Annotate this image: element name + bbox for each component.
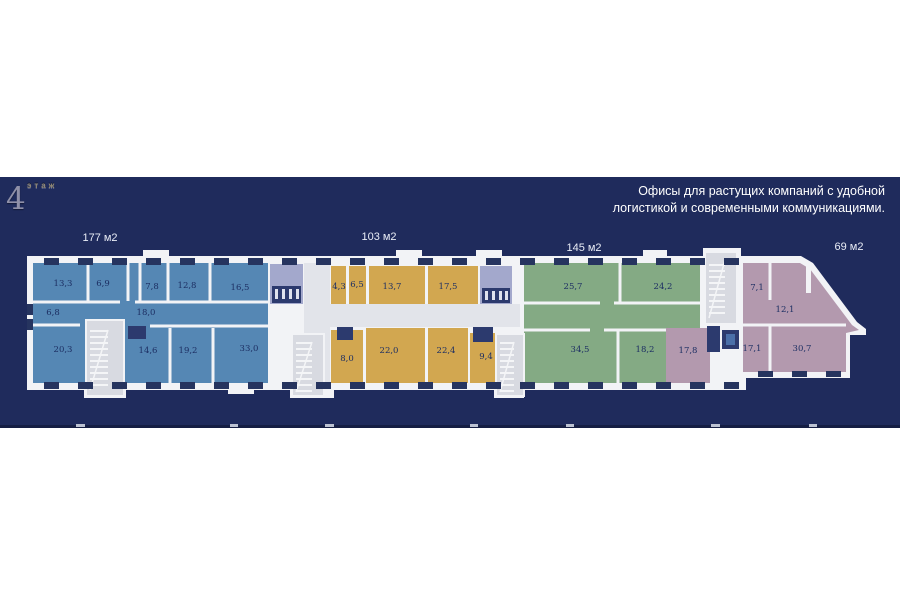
wc-block-left (270, 264, 303, 304)
room-area-label: 22,4 (437, 346, 456, 356)
room-area-label: 7,8 (145, 282, 159, 292)
floor-plan (0, 0, 900, 604)
reflection-speck (325, 424, 334, 427)
reflection-speck (711, 424, 720, 427)
room-area-label: 17,8 (679, 346, 698, 356)
room-area-label: 7,1 (750, 283, 764, 293)
room-area-label: 6,9 (96, 279, 110, 289)
room-area-label: 17,5 (439, 282, 458, 292)
room-area-label: 12,1 (776, 305, 795, 315)
room-area-label: 16,5 (231, 283, 250, 293)
room-area-label: 9,4 (479, 352, 493, 362)
room-area-label: 12,8 (178, 281, 197, 291)
reflection-speck (470, 424, 478, 427)
reflection-speck (230, 424, 238, 427)
room-area-label: 19,2 (179, 346, 198, 356)
room-area-label: 4,3 (332, 282, 346, 292)
reflection-speck (566, 424, 574, 427)
reflection-speck (809, 424, 817, 427)
reflection-speck (76, 424, 85, 427)
room-area-label: 13,3 (54, 279, 73, 289)
room-area-label: 6,8 (46, 308, 60, 318)
room-area-label: 14,6 (139, 346, 158, 356)
promo-slide: этаж 4 Офисы для растущих компаний с удо… (0, 0, 900, 604)
room-area-label: 18,2 (636, 345, 655, 355)
room-area-label: 20,3 (54, 345, 73, 355)
room-area-label: 17,1 (743, 344, 762, 354)
wc-block-right (480, 266, 512, 304)
room-area-label: 33,0 (240, 344, 259, 354)
room-area-label: 34,5 (571, 345, 590, 355)
room-area-label: 18,0 (137, 308, 156, 318)
room-area-label: 24,2 (654, 282, 673, 292)
room-area-label: 22,0 (380, 346, 399, 356)
room-area-label: 25,7 (564, 282, 583, 292)
room-area-label: 6,5 (350, 280, 364, 290)
room-area-label: 8,0 (340, 354, 354, 364)
room-area-label: 30,7 (793, 344, 812, 354)
room-area-label: 13,7 (383, 282, 402, 292)
